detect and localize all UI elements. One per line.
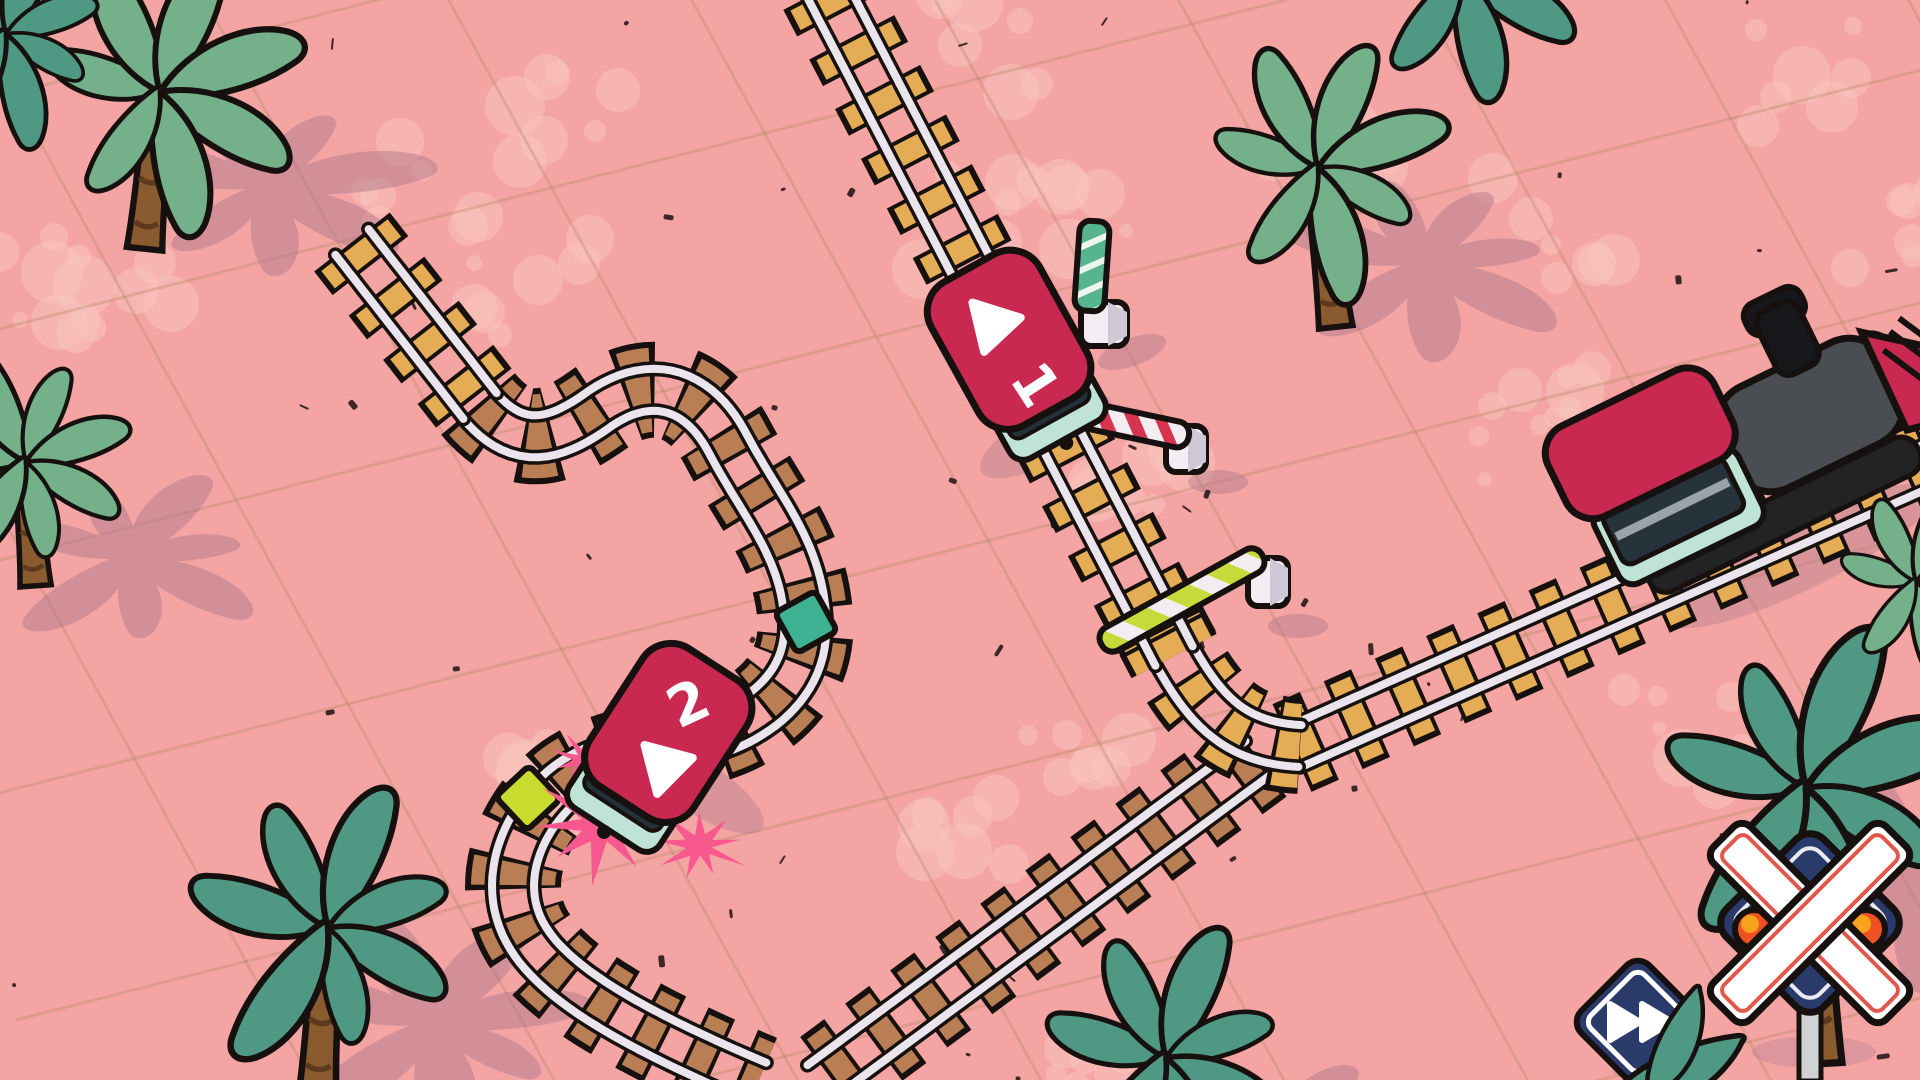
game-viewport: 1 2 bbox=[0, 0, 1920, 1080]
speckle bbox=[658, 955, 665, 968]
speckle bbox=[1675, 275, 1682, 285]
speckle bbox=[1368, 643, 1374, 655]
speckle bbox=[453, 666, 460, 672]
